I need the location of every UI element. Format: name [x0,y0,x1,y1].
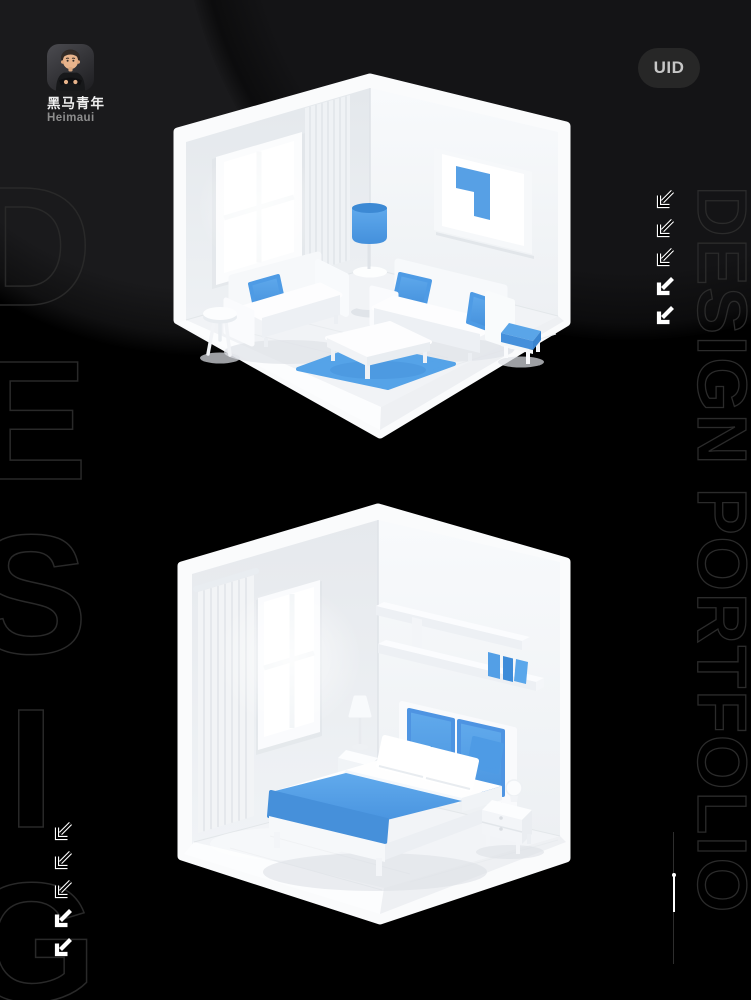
down-left-arrow-outline-icon [652,244,678,270]
profile-avatar[interactable] [47,44,94,91]
down-left-arrow-outline-icon [50,818,76,844]
down-left-arrow-solid-icon [50,905,76,931]
down-left-arrow-outline-icon [50,876,76,902]
ribbed-corner-panel [305,95,350,273]
down-left-arrow-outline-icon [50,847,76,873]
profile-names: 黑马青年 Heimaui [47,96,105,125]
down-left-arrow-solid-icon [50,934,76,960]
uid-badge[interactable]: UID [638,48,700,88]
page-background: DESIGN DESIGN PORTFOLIO 黑马青年 Heimaui UID [0,0,751,1000]
profile-display-name: 黑马青年 [47,96,105,112]
ball-lamp [506,780,522,796]
living-room-render [168,62,592,448]
right-outline-word: DESIGN PORTFOLIO [687,186,751,914]
profile-handle: Heimaui [47,112,105,125]
arrow-group-left [50,818,76,960]
down-left-arrow-outline-icon [652,186,678,212]
scroll-indicator [673,832,675,964]
memoji-avatar-icon [47,44,94,91]
down-left-arrow-solid-icon [652,273,678,299]
arrow-group-right [652,186,678,328]
down-left-arrow-outline-icon [652,215,678,241]
scroll-thumb[interactable] [673,876,675,912]
bedroom-render [170,500,600,925]
down-left-arrow-solid-icon [652,302,678,328]
